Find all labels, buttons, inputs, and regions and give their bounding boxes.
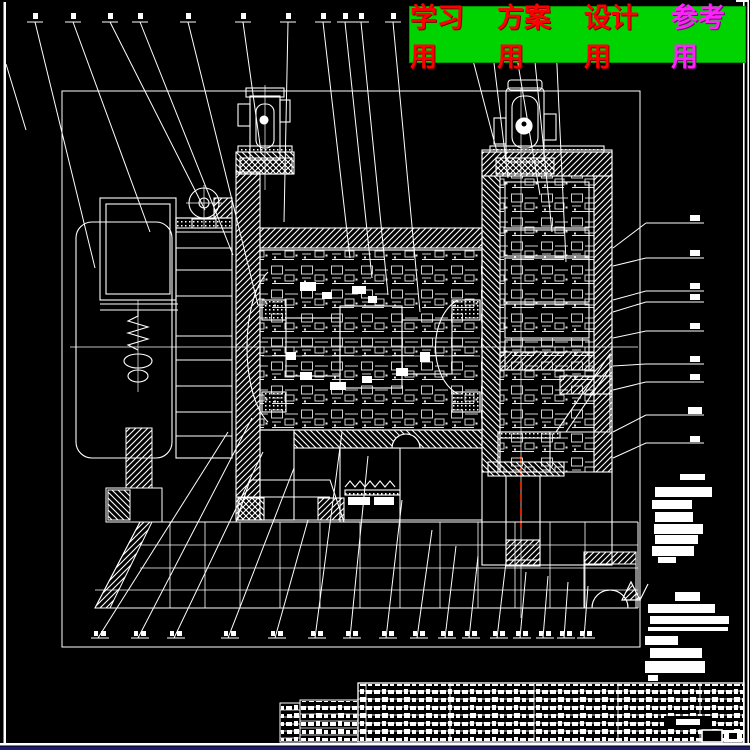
- roughness-symbol: [622, 582, 648, 600]
- title-block-table: [280, 683, 744, 742]
- notes-bars: [645, 474, 729, 681]
- motor-assembly: [76, 188, 232, 458]
- banner-text-design: 设计用: [584, 0, 658, 74]
- leaders-right: [613, 215, 704, 458]
- watermark-banner: 学习用 方案用 设计用 参考用: [409, 6, 746, 63]
- banner-text-reference: 参考用: [671, 0, 745, 74]
- banner-text-scheme: 方案用: [497, 0, 571, 74]
- vertical-gear-stack: [460, 146, 612, 566]
- cad-canvas: [0, 0, 750, 750]
- cad-screenshot: 学习用 方案用 设计用 参考用: [0, 0, 750, 750]
- gear-housing: [236, 146, 482, 522]
- banner-text-study: 学习用: [410, 0, 484, 74]
